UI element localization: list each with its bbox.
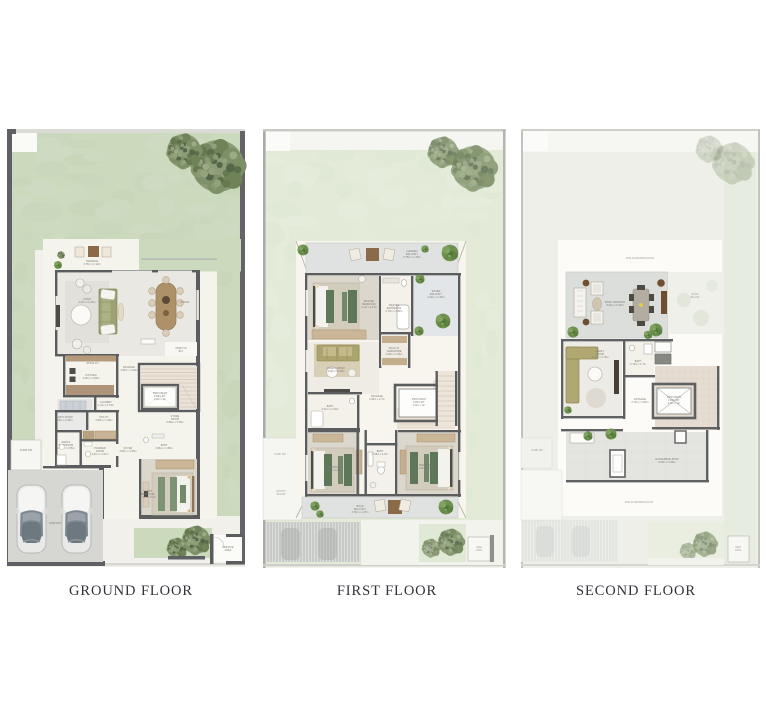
- svg-text:2.0m x 1m: 2.0m x 1m: [413, 404, 425, 407]
- svg-text:2.0m x 1m: 2.0m x 1m: [668, 402, 680, 405]
- svg-text:3.02m x 3.29m: 3.02m x 3.29m: [327, 370, 344, 373]
- svg-text:GROUND FLOOR: GROUND FLOOR: [69, 583, 193, 599]
- svg-text:3.26m x 2.85m: 3.26m x 2.85m: [82, 377, 99, 380]
- svg-text:NON ACCESSIBLE ROOF: NON ACCESSIBLE ROOF: [626, 257, 655, 260]
- svg-text:3.75m x 2.12m: 3.75m x 2.12m: [83, 263, 100, 266]
- svg-text:4.32m x 3.33m: 4.32m x 3.33m: [427, 296, 444, 299]
- svg-text:5.04m x 5.46m: 5.04m x 5.46m: [606, 304, 623, 307]
- svg-text:BELOW: BELOW: [691, 296, 700, 299]
- svg-text:2.26m x 1.8m: 2.26m x 1.8m: [372, 453, 388, 456]
- svg-text:SPICE KIT.: SPICE KIT.: [87, 362, 100, 365]
- svg-text:FIRST FLOOR: FIRST FLOOR: [337, 583, 437, 599]
- svg-text:PUMP RM: PUMP RM: [274, 453, 285, 456]
- svg-text:3.73m x 1.37m: 3.73m x 1.37m: [351, 511, 368, 514]
- svg-text:2.88m x 1.55m: 2.88m x 1.55m: [166, 421, 183, 424]
- svg-text:8.75m x 1.78m: 8.75m x 1.78m: [403, 256, 420, 259]
- svg-text:8.33m x 3.36m: 8.33m x 3.36m: [658, 461, 675, 464]
- svg-text:2.74m x 4.75m: 2.74m x 4.75m: [591, 356, 608, 359]
- svg-text:BELOW: BELOW: [277, 493, 286, 496]
- svg-text:3.66m x 3.2m: 3.66m x 3.2m: [140, 496, 156, 499]
- svg-text:4.05m x 2.7m: 4.05m x 2.7m: [369, 398, 385, 401]
- svg-text:AREA: AREA: [225, 549, 232, 552]
- svg-text:3.96m x 1.00m: 3.96m x 1.00m: [120, 369, 137, 372]
- svg-text:3.05m x 3.05m: 3.05m x 3.05m: [119, 450, 136, 453]
- svg-text:4.37m x 5.15m: 4.37m x 5.15m: [78, 301, 95, 304]
- svg-text:CARPORT: CARPORT: [49, 522, 62, 525]
- svg-text:1.0m x 0.75m: 1.0m x 0.75m: [98, 404, 114, 407]
- svg-text:4.04m x 3.36m: 4.04m x 3.36m: [324, 469, 341, 472]
- svg-text:GATE: GATE: [735, 549, 742, 552]
- svg-text:4.04m x 3.36m: 4.04m x 3.36m: [418, 467, 435, 470]
- svg-text:1.23m x 2.46m: 1.23m x 2.46m: [385, 353, 402, 356]
- svg-text:2.96m x 1.55m: 2.96m x 1.55m: [155, 447, 172, 450]
- svg-text:1.97m x 1.61m: 1.97m x 1.61m: [91, 453, 108, 456]
- svg-text:SECOND FLOOR: SECOND FLOOR: [576, 583, 696, 599]
- svg-text:2.74m x 1.86m: 2.74m x 1.86m: [631, 401, 648, 404]
- svg-text:3.05m x 2.05m: 3.05m x 2.05m: [55, 419, 72, 422]
- svg-text:SKY: SKY: [178, 350, 183, 353]
- svg-text:2.0m x 1m: 2.0m x 1m: [154, 398, 166, 401]
- svg-text:3.21m x 2.30m: 3.21m x 2.30m: [321, 408, 338, 411]
- svg-text:4.1m x 4.27m: 4.1m x 4.27m: [361, 306, 377, 309]
- svg-text:2.79m x 1.7m: 2.79m x 1.7m: [630, 363, 646, 366]
- svg-text:2.73m x 1.82m: 2.73m x 1.82m: [385, 310, 402, 313]
- svg-text:NON ACCESSIBLE ROOF: NON ACCESSIBLE ROOF: [625, 501, 654, 504]
- svg-text:2.80m x 1.95m: 2.80m x 1.95m: [95, 419, 112, 422]
- svg-text:DINING: DINING: [181, 301, 190, 304]
- svg-text:GATE: GATE: [476, 549, 483, 552]
- svg-text:PUMP RM: PUMP RM: [531, 449, 542, 452]
- svg-text:PUMP RM: PUMP RM: [20, 449, 32, 452]
